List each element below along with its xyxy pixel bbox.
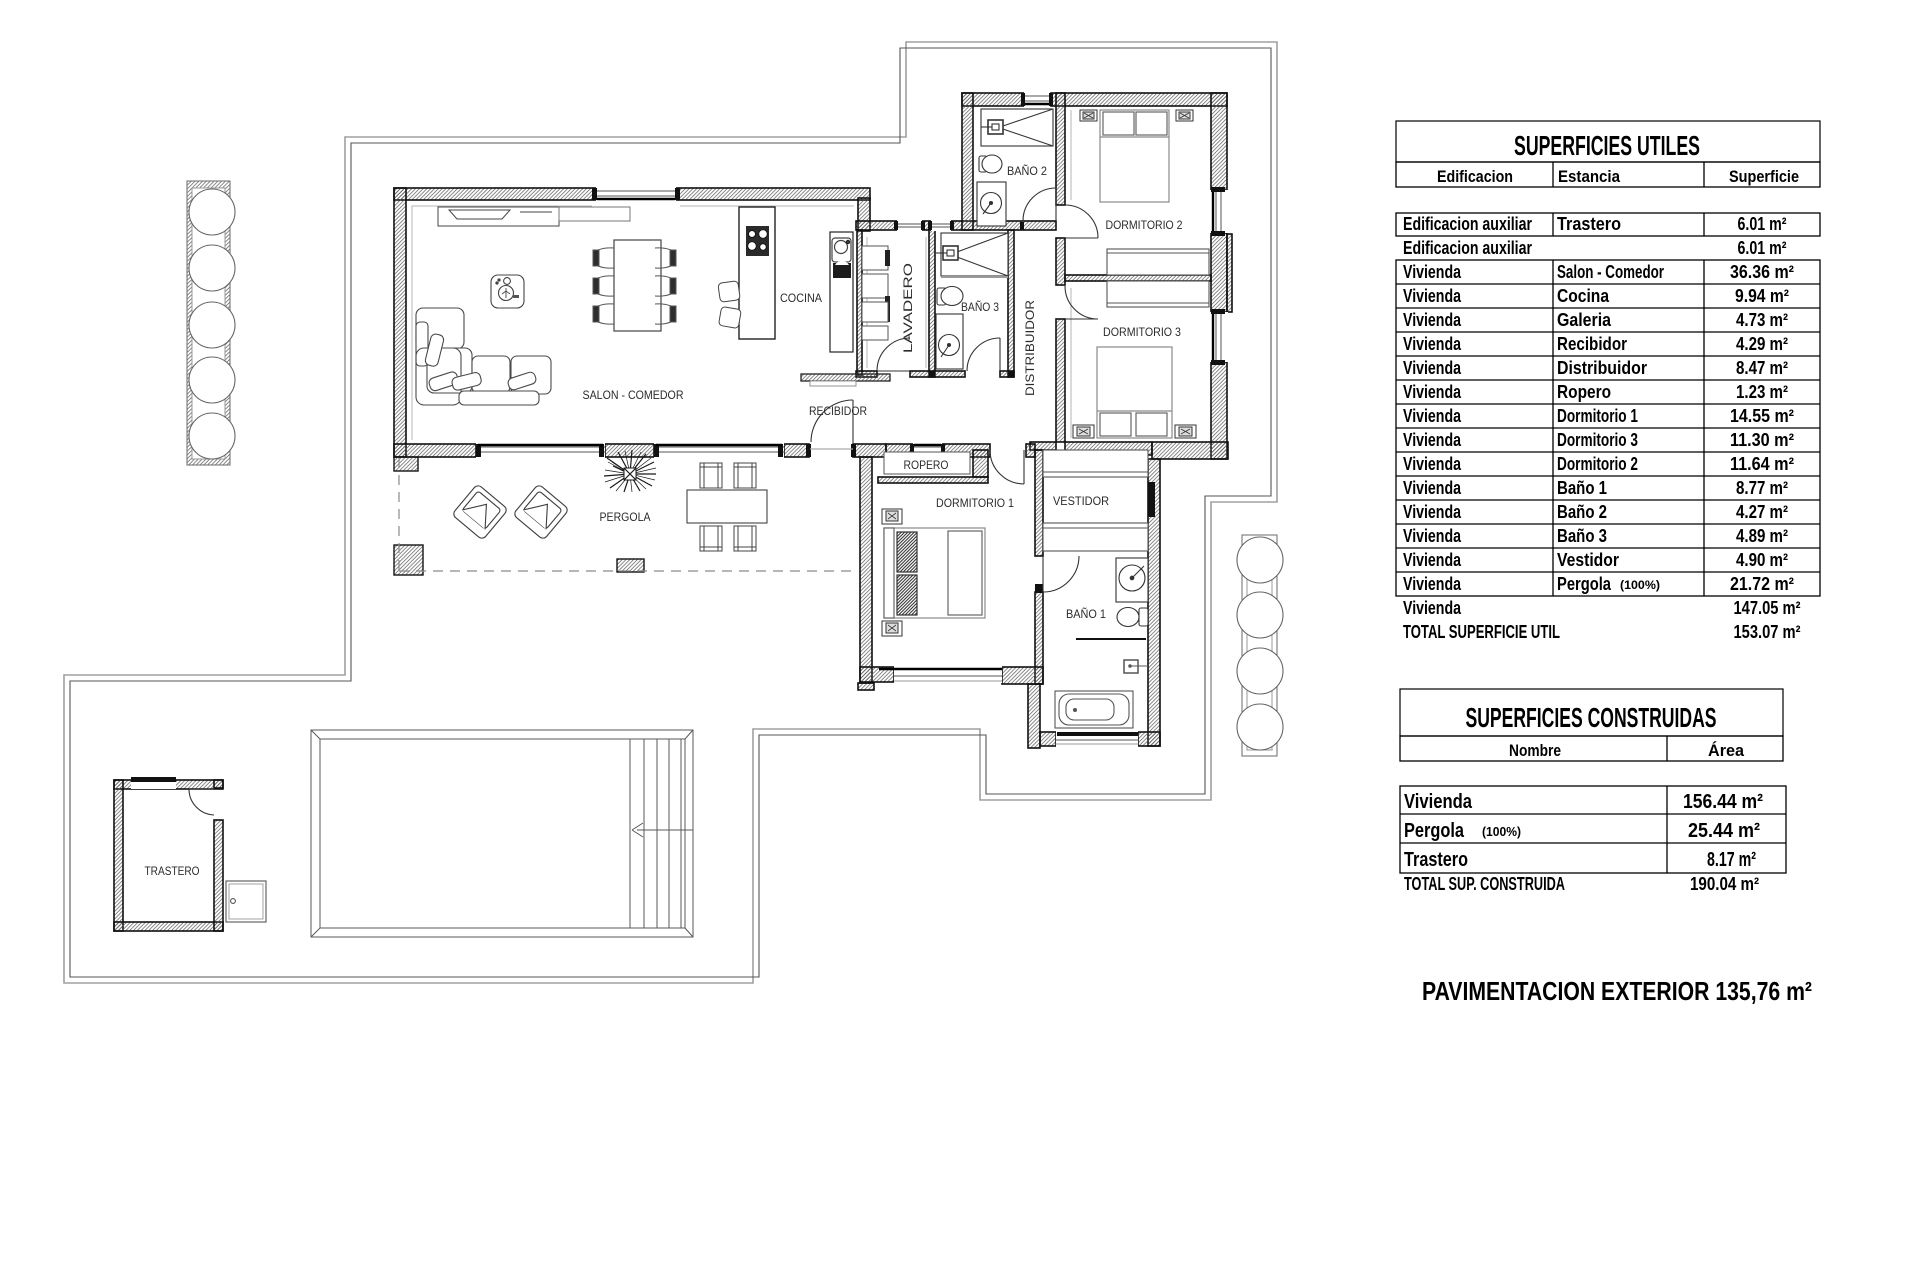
svg-text:4.27 m²: 4.27 m² — [1736, 502, 1788, 522]
svg-text:25.44 m²: 25.44 m² — [1688, 820, 1760, 842]
svg-text:190.04 m²: 190.04 m² — [1690, 874, 1759, 894]
svg-text:SUPERFICIES UTILES: SUPERFICIES UTILES — [1514, 130, 1700, 161]
svg-text:TOTAL SUPERFICIE UTIL: TOTAL SUPERFICIE UTIL — [1403, 622, 1560, 642]
svg-text:Edificacion: Edificacion — [1437, 167, 1513, 186]
svg-text:11.64 m²: 11.64 m² — [1730, 454, 1794, 474]
svg-text:6.01 m²: 6.01 m² — [1738, 238, 1787, 258]
svg-text:Área: Área — [1708, 741, 1745, 760]
svg-text:Superficie: Superficie — [1729, 167, 1799, 186]
svg-text:(100%): (100%) — [1620, 578, 1660, 592]
svg-text:PERGOLA: PERGOLA — [600, 510, 651, 524]
svg-text:Edificacion auxiliar: Edificacion auxiliar — [1403, 238, 1532, 258]
svg-text:Pergola: Pergola — [1557, 574, 1612, 594]
svg-text:Vivienda: Vivienda — [1403, 598, 1462, 618]
svg-text:Estancia: Estancia — [1558, 167, 1620, 186]
svg-text:Pergola: Pergola — [1404, 820, 1465, 842]
svg-text:Vivienda: Vivienda — [1403, 262, 1462, 282]
svg-text:Vivienda: Vivienda — [1403, 286, 1462, 306]
svg-text:Recibidor: Recibidor — [1557, 334, 1627, 354]
svg-text:Distribuidor: Distribuidor — [1557, 358, 1647, 378]
svg-text:Baño 1: Baño 1 — [1557, 478, 1607, 498]
svg-text:14.55 m²: 14.55 m² — [1730, 406, 1794, 426]
svg-text:21.72 m²: 21.72 m² — [1730, 574, 1794, 594]
svg-text:Vestidor: Vestidor — [1557, 550, 1619, 570]
svg-text:Dormitorio 3: Dormitorio 3 — [1557, 430, 1638, 450]
svg-text:4.73 m²: 4.73 m² — [1736, 310, 1788, 330]
svg-text:Vivienda: Vivienda — [1403, 406, 1462, 426]
svg-text:Ropero: Ropero — [1557, 382, 1611, 402]
svg-text:DISTRIBUIDOR: DISTRIBUIDOR — [1023, 300, 1037, 396]
svg-text:Nombre: Nombre — [1509, 741, 1561, 760]
svg-text:BAÑO 1: BAÑO 1 — [1066, 607, 1106, 621]
svg-text:Galeria: Galeria — [1557, 310, 1612, 330]
svg-text:LAVADERO: LAVADERO — [901, 263, 915, 353]
svg-text:VESTIDOR: VESTIDOR — [1053, 494, 1109, 508]
svg-text:Vivienda: Vivienda — [1403, 454, 1462, 474]
svg-text:RECIBIDOR: RECIBIDOR — [809, 404, 867, 418]
svg-text:Salon - Comedor: Salon - Comedor — [1557, 262, 1664, 282]
svg-text:4.90 m²: 4.90 m² — [1736, 550, 1788, 570]
svg-text:DORMITORIO 3: DORMITORIO 3 — [1103, 325, 1181, 339]
svg-text:156.44 m²: 156.44 m² — [1683, 791, 1763, 813]
svg-text:4.89 m²: 4.89 m² — [1736, 526, 1788, 546]
svg-text:Edificacion auxiliar: Edificacion auxiliar — [1403, 214, 1532, 234]
svg-text:Trastero: Trastero — [1404, 849, 1468, 871]
svg-text:6.01 m²: 6.01 m² — [1738, 214, 1787, 234]
svg-text:Trastero: Trastero — [1557, 214, 1621, 234]
svg-text:Vivienda: Vivienda — [1404, 791, 1473, 813]
svg-text:DORMITORIO 2: DORMITORIO 2 — [1106, 218, 1183, 232]
svg-text:BAÑO 2: BAÑO 2 — [1007, 164, 1047, 178]
svg-text:COCINA: COCINA — [780, 291, 822, 305]
svg-text:Vivienda: Vivienda — [1403, 502, 1462, 522]
svg-text:PAVIMENTACION EXTERIOR 135,76: PAVIMENTACION EXTERIOR 135,76 m² — [1422, 976, 1812, 1006]
svg-text:DORMITORIO 1: DORMITORIO 1 — [936, 496, 1014, 510]
svg-text:TRASTERO: TRASTERO — [145, 864, 200, 878]
svg-text:8.17 m²: 8.17 m² — [1707, 849, 1756, 871]
svg-text:ROPERO: ROPERO — [904, 458, 949, 472]
svg-text:Vivienda: Vivienda — [1403, 478, 1462, 498]
svg-text:Vivienda: Vivienda — [1403, 550, 1462, 570]
svg-text:SALON - COMEDOR: SALON - COMEDOR — [583, 388, 684, 402]
svg-text:147.05 m²: 147.05 m² — [1734, 598, 1801, 618]
svg-text:SUPERFICIES CONSTRUIDAS: SUPERFICIES CONSTRUIDAS — [1466, 702, 1717, 733]
svg-text:Dormitorio 2: Dormitorio 2 — [1557, 454, 1638, 474]
svg-text:Baño 3: Baño 3 — [1557, 526, 1607, 546]
svg-text:Vivienda: Vivienda — [1403, 310, 1462, 330]
svg-text:Vivienda: Vivienda — [1403, 382, 1462, 402]
svg-text:1.23 m²: 1.23 m² — [1736, 382, 1788, 402]
svg-text:BAÑO 3: BAÑO 3 — [961, 300, 999, 314]
svg-text:Vivienda: Vivienda — [1403, 358, 1462, 378]
svg-text:Vivienda: Vivienda — [1403, 334, 1462, 354]
svg-text:4.29 m²: 4.29 m² — [1736, 334, 1788, 354]
svg-text:153.07 m²: 153.07 m² — [1734, 622, 1801, 642]
svg-text:Vivienda: Vivienda — [1403, 574, 1462, 594]
svg-text:8.47 m²: 8.47 m² — [1736, 358, 1788, 378]
svg-text:Cocina: Cocina — [1557, 286, 1610, 306]
svg-text:Vivienda: Vivienda — [1403, 526, 1462, 546]
svg-text:Dormitorio 1: Dormitorio 1 — [1557, 406, 1638, 426]
svg-text:Baño 2: Baño 2 — [1557, 502, 1607, 522]
svg-text:TOTAL SUP. CONSTRUIDA: TOTAL SUP. CONSTRUIDA — [1404, 874, 1565, 894]
svg-text:8.77 m²: 8.77 m² — [1736, 478, 1788, 498]
svg-text:Vivienda: Vivienda — [1403, 430, 1462, 450]
svg-text:(100%): (100%) — [1482, 824, 1521, 839]
svg-text:11.30 m²: 11.30 m² — [1730, 430, 1794, 450]
svg-text:9.94 m²: 9.94 m² — [1735, 286, 1789, 306]
svg-text:36.36 m²: 36.36 m² — [1730, 262, 1794, 282]
